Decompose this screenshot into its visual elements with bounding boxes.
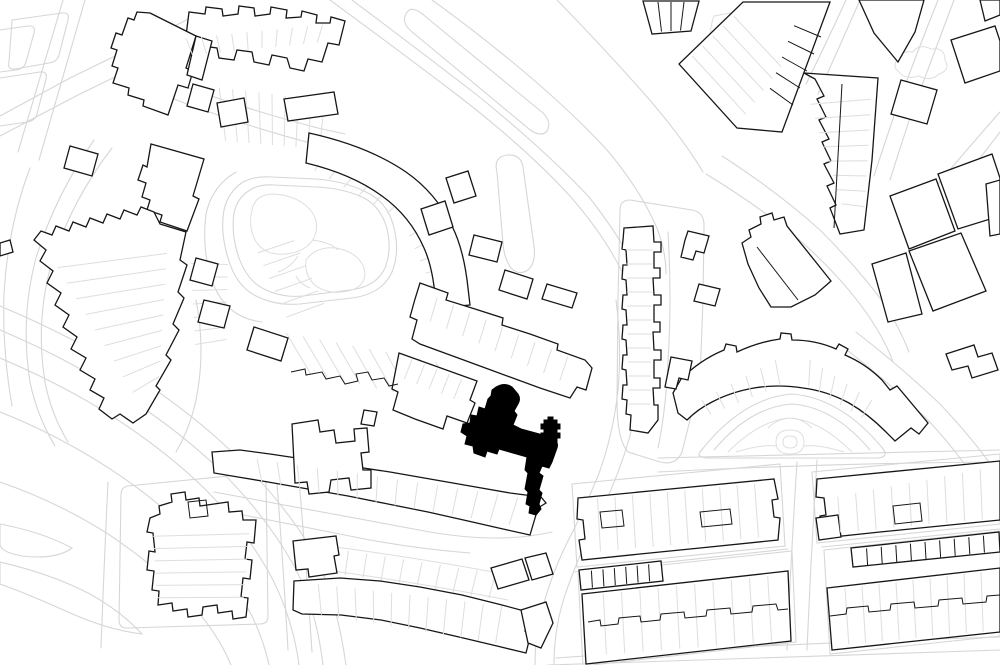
building-footprint	[679, 2, 830, 132]
road-line	[176, 300, 201, 452]
road-line	[496, 155, 534, 273]
building-footprint	[681, 231, 709, 260]
building-footprint	[293, 578, 531, 653]
building-footprint	[469, 235, 502, 262]
building-footprint	[980, 0, 1000, 21]
road-line	[658, 450, 1000, 458]
building-footprint	[111, 12, 196, 115]
parcel-line	[736, 446, 776, 452]
road-line	[4, 168, 30, 406]
divider-line	[272, 94, 273, 145]
parcel-line	[251, 194, 317, 254]
building-footprint	[361, 410, 377, 426]
building-footprint	[577, 479, 780, 560]
building-footprint	[694, 284, 720, 306]
building-footprint	[284, 92, 338, 121]
map-canvas	[0, 0, 1000, 665]
parcel-line	[328, 546, 515, 576]
building-footprint	[542, 284, 577, 308]
parcel-line	[728, 418, 852, 452]
parcel-line	[776, 430, 804, 454]
building-footprint	[986, 180, 1000, 236]
building-footprint	[392, 353, 477, 429]
road-line	[807, 460, 817, 650]
road-line	[658, 232, 670, 448]
building-footprint	[859, 0, 924, 62]
building-footprint	[247, 327, 288, 361]
parcel-line	[793, 418, 812, 428]
divider-line	[195, 340, 226, 345]
building-footprint	[0, 240, 13, 256]
building-footprint	[446, 171, 476, 203]
divider-line	[337, 471, 338, 496]
road-line	[18, 0, 63, 152]
divider-line	[336, 343, 360, 385]
divider-line	[192, 290, 227, 291]
divider-line	[381, 556, 385, 580]
building-footprint	[293, 536, 339, 577]
building-footprint	[491, 559, 529, 589]
building-footprint	[891, 80, 937, 124]
building-footprint	[217, 98, 248, 127]
divider-line	[303, 336, 327, 377]
building-footprint	[525, 553, 553, 580]
divider-line	[453, 568, 459, 593]
building-footprint	[951, 26, 1000, 83]
parcel-line	[804, 446, 844, 452]
parcel-line	[306, 248, 365, 293]
building-footprint	[673, 333, 928, 441]
building-footprint	[34, 207, 187, 423]
road-line	[9, 13, 69, 69]
building-footprint	[622, 226, 661, 433]
divider-line	[275, 278, 312, 291]
building-footprints-layer	[0, 0, 1000, 664]
divider-line	[263, 253, 300, 266]
divider-line	[287, 333, 311, 373]
road-line	[0, 524, 72, 557]
road-line	[0, 562, 142, 634]
divider-line	[471, 570, 477, 595]
building-footprint	[946, 345, 998, 378]
building-footprint	[147, 492, 256, 619]
divider-line	[345, 551, 348, 575]
building-footprint	[190, 258, 218, 286]
divider-line	[435, 565, 440, 590]
divider-line	[391, 593, 392, 626]
building-footprint	[816, 515, 841, 540]
road-line	[101, 482, 108, 648]
parcel-line	[783, 436, 797, 448]
divider-line	[363, 554, 367, 578]
road-line	[223, 177, 397, 304]
divider-line	[399, 559, 404, 583]
building-footprint	[64, 146, 98, 176]
road-line	[205, 172, 262, 322]
divider-line	[417, 562, 422, 587]
divider-line	[259, 92, 261, 144]
road-line	[233, 185, 389, 297]
divider-line	[833, 175, 867, 176]
divider-line	[258, 241, 294, 253]
divider-line	[286, 303, 324, 317]
site-plan-svg	[0, 0, 1000, 665]
road-line	[276, 470, 288, 650]
building-footprint	[742, 213, 831, 307]
road-line	[0, 26, 34, 72]
building-footprint	[499, 270, 533, 299]
